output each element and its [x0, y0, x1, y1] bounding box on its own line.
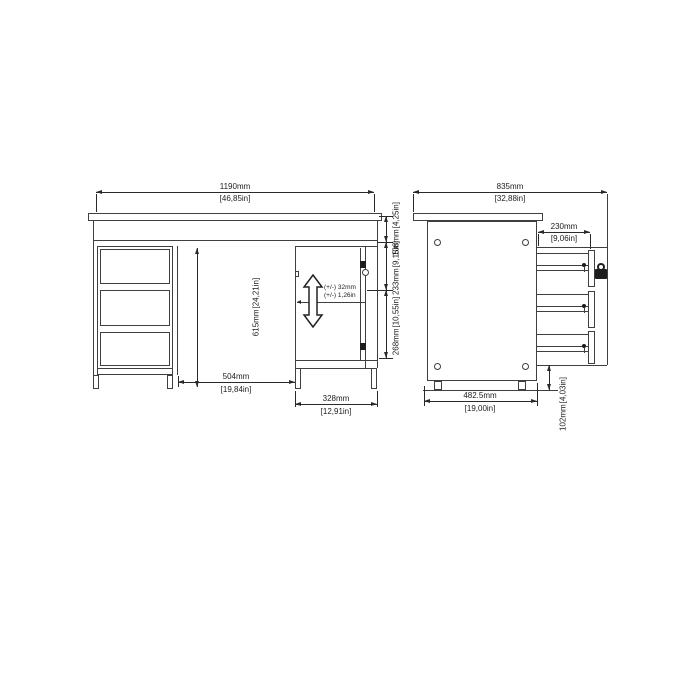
shelf-adjust-label-in: (+/-) 1,26in	[324, 292, 356, 300]
hole	[434, 363, 441, 370]
drawer-front	[100, 249, 170, 284]
hole	[522, 363, 529, 370]
shelf-adjust-label-mm: (+/-) 32mm	[324, 284, 356, 292]
drawer-front	[100, 332, 170, 366]
dimension-drawing: (+/-) 32mm (+/-) 1,26in 1190mm [46,85in]…	[0, 0, 700, 700]
hole	[434, 239, 441, 246]
foot	[371, 368, 377, 389]
hinge-icon	[360, 343, 366, 350]
foot	[518, 381, 526, 390]
side-desktop	[413, 213, 543, 221]
dim-lower-right: 268mm [10,55in]	[392, 297, 401, 355]
drawer-section-front	[588, 291, 595, 328]
drawer-section-front	[588, 250, 595, 287]
foot	[434, 381, 442, 390]
shelf-adjust-arrow-icon	[302, 274, 324, 328]
knob-icon	[362, 269, 369, 276]
side-panel	[427, 221, 537, 381]
foot	[167, 375, 173, 389]
front-desktop	[88, 213, 382, 221]
shelf-pin	[295, 271, 299, 277]
shelf-mark	[297, 300, 301, 304]
foot	[295, 368, 301, 389]
drawer-section-front	[588, 331, 595, 364]
foot	[93, 375, 99, 389]
hinge-icon	[360, 261, 366, 268]
dim-upper-right: 233mm [9,15in]	[392, 241, 401, 295]
hole	[522, 239, 529, 246]
drawer-front	[100, 290, 170, 326]
